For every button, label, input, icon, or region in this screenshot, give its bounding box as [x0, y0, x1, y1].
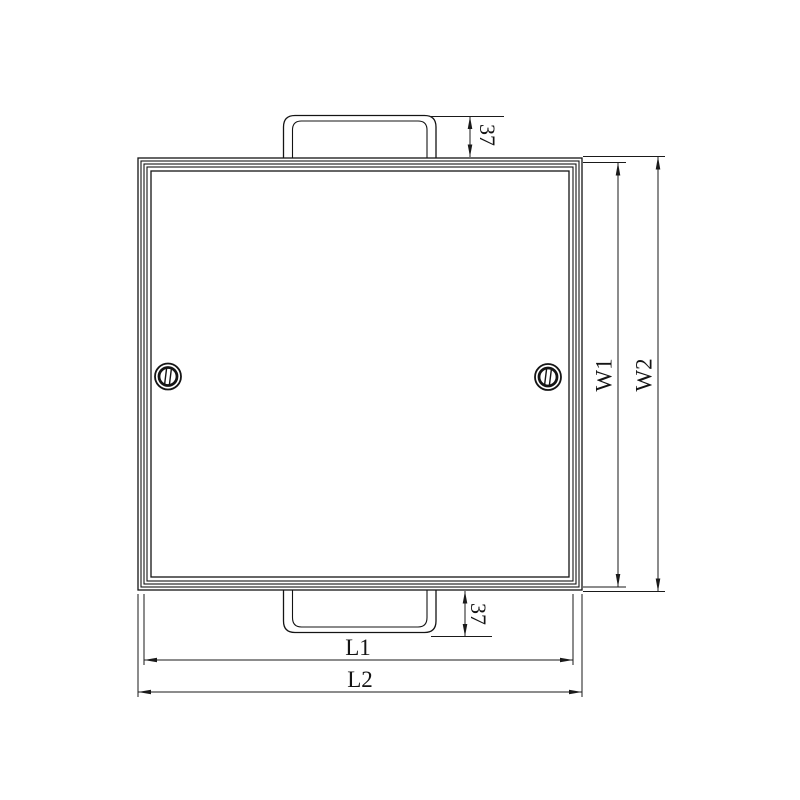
dim-w1-arrow-down: [616, 574, 621, 587]
top-tab: [284, 116, 437, 159]
right-screw: [535, 364, 561, 390]
dim-tab-bottom-arrow-up: [463, 591, 468, 604]
dim-tab-top-label: 37: [475, 124, 500, 146]
dim-w1-arrow-up: [616, 163, 621, 176]
bottom-tab: [284, 590, 437, 633]
left-screw-slot: [165, 368, 172, 385]
dim-l2-label: L2: [347, 667, 373, 692]
right-screw-slot: [545, 369, 552, 386]
dim-l1-arrow-right: [560, 658, 573, 663]
drawing-page: W1 W2 L1 L2: [0, 0, 800, 800]
dim-tab-bottom: 37: [431, 591, 492, 637]
dim-tab-top-arrow-down: [468, 145, 473, 158]
dim-w2-arrow-up: [656, 157, 661, 170]
frame-rect-2: [141, 161, 579, 587]
bottom-tab-outline-outer: [284, 590, 437, 633]
right-screw-head-inner: [539, 368, 557, 386]
left-screw-slot-line: [165, 368, 167, 384]
dim-l1-arrow-left: [144, 658, 157, 663]
top-tab-outline-outer: [284, 116, 437, 159]
dim-w2-arrow-down: [656, 579, 661, 592]
dim-tab-top: 37: [431, 117, 504, 158]
dim-l2-arrow-left: [138, 690, 151, 695]
frame-rect-4: [147, 167, 573, 581]
dim-tab-top-arrow-up: [468, 117, 473, 130]
dim-w1: W1: [583, 163, 626, 588]
right-screw-slot-line: [545, 369, 547, 385]
dim-w2-label: W2: [632, 358, 657, 391]
top-tab-outline-inner: [293, 121, 428, 158]
dim-tab-bottom-label: 37: [466, 603, 491, 625]
dim-l1: L1: [144, 594, 573, 665]
dim-w1-label: W1: [592, 358, 617, 391]
technical-drawing-canvas: W1 W2 L1 L2: [0, 0, 800, 800]
right-screw-slot-line: [549, 369, 551, 385]
dim-l2-arrow-right: [569, 690, 582, 695]
bottom-tab-outline-inner: [293, 590, 428, 627]
dim-tab-bottom-arrow-down: [463, 624, 468, 637]
cover-panel: [151, 171, 569, 577]
left-screw-head-inner: [159, 368, 177, 386]
left-screw: [155, 364, 181, 390]
frame-rect-outer: [138, 158, 582, 590]
dim-l1-label: L1: [345, 635, 371, 660]
frame-rect-3: [144, 164, 576, 584]
left-screw-slot-line: [169, 369, 171, 385]
cover-frame-outline: [138, 158, 582, 590]
